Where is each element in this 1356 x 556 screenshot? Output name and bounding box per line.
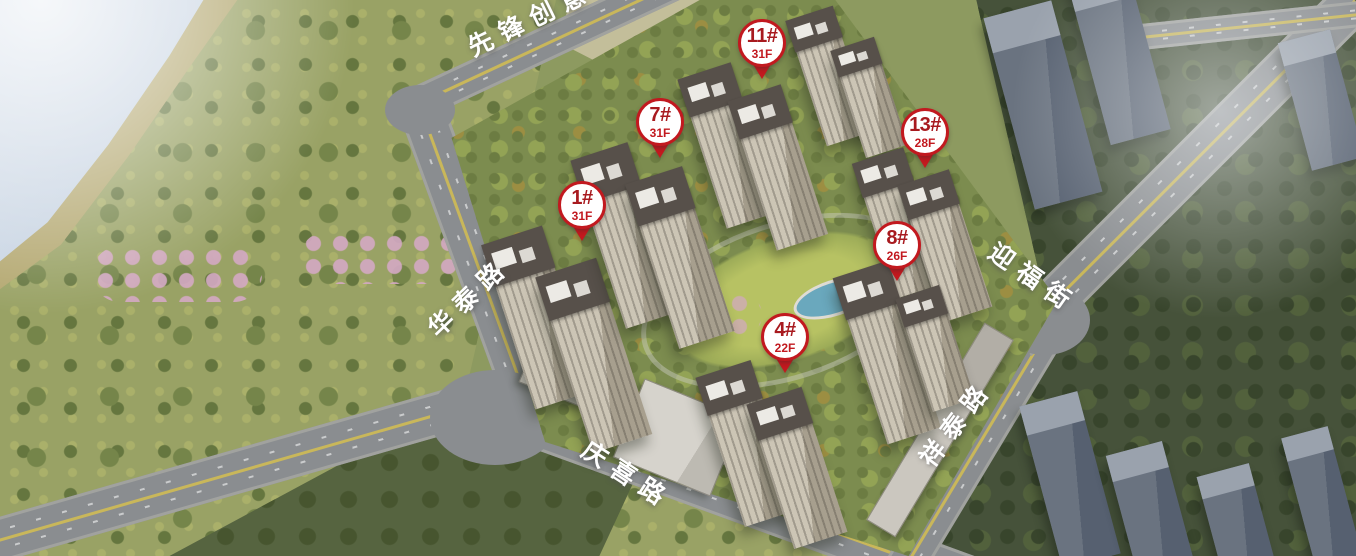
pin-floor-count: 28F	[915, 137, 936, 149]
pin-building-number: 11#	[747, 26, 778, 46]
pin-floor-count: 31F	[650, 127, 671, 139]
blossom-trees	[300, 232, 460, 284]
pin-floor-count: 31F	[752, 48, 773, 60]
pin-building-number: 8#	[886, 228, 907, 248]
building-pin-1[interactable]: 1# 31F	[558, 181, 606, 241]
pin-circle: 8# 26F	[873, 221, 921, 269]
pin-floor-count: 22F	[775, 342, 796, 354]
road-junction	[385, 85, 455, 135]
pin-building-number: 7#	[649, 105, 670, 125]
building-pin-8[interactable]: 8# 26F	[873, 221, 921, 281]
pin-building-number: 13#	[909, 115, 941, 135]
pin-circle: 4# 22F	[761, 313, 809, 361]
pin-floor-count: 31F	[572, 210, 593, 222]
pin-circle: 1# 31F	[558, 181, 606, 229]
building-pin-7[interactable]: 7# 31F	[636, 98, 684, 158]
pin-building-number: 4#	[774, 320, 795, 340]
building-pin-13[interactable]: 13# 28F	[901, 108, 949, 168]
pin-circle: 13# 28F	[901, 108, 949, 156]
pin-circle: 7# 31F	[636, 98, 684, 146]
building-pin-4[interactable]: 4# 22F	[761, 313, 809, 373]
pin-floor-count: 26F	[887, 250, 908, 262]
building-pin-11[interactable]: 11# 31F	[738, 19, 786, 79]
aerial-site-map: 先锋创意 华泰路 迎福街 祥泰路 庆喜路 1# 31F 4# 22F 7# 31…	[0, 0, 1356, 556]
blossom-trees	[92, 246, 262, 302]
building-roof	[1067, 0, 1135, 12]
pin-building-number: 1#	[571, 188, 592, 208]
pin-circle: 11# 31F	[738, 19, 786, 67]
